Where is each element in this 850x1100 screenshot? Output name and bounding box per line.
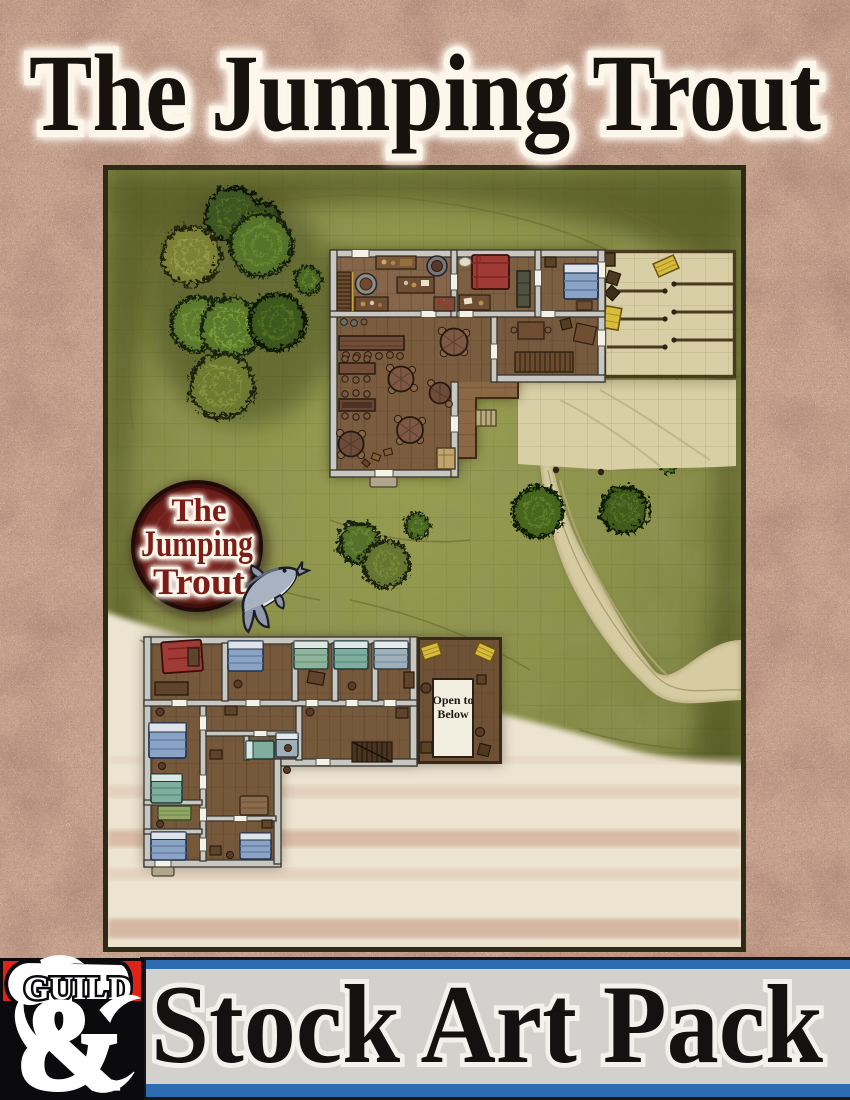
- svg-text:Below: Below: [437, 707, 469, 721]
- svg-text:Trout: Trout: [153, 562, 246, 603]
- svg-text:Jumping: Jumping: [141, 524, 253, 565]
- svg-text:The Jumping Trout: The Jumping Trout: [29, 32, 821, 154]
- svg-text:Stock Art Pack: Stock Art Pack: [151, 963, 824, 1087]
- svg-text:Open to: Open to: [432, 693, 473, 707]
